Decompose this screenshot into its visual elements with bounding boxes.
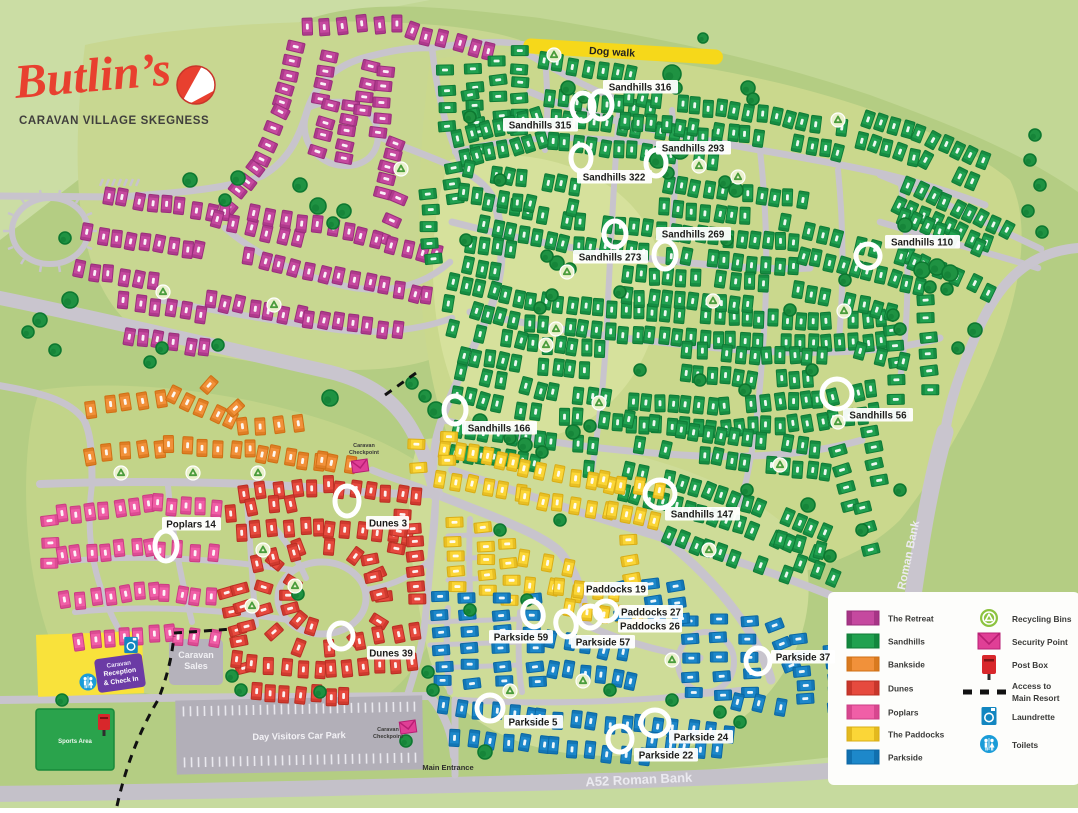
svg-text:Sales: Sales <box>184 661 208 671</box>
svg-text:The Paddocks: The Paddocks <box>888 730 945 740</box>
svg-text:Sandhills 147: Sandhills 147 <box>671 510 734 521</box>
svg-text:Main Entrance: Main Entrance <box>422 763 473 772</box>
svg-text:Sandhills 315: Sandhills 315 <box>509 121 572 132</box>
svg-text:Main Resort: Main Resort <box>1012 693 1060 703</box>
svg-text:Recycling Bins: Recycling Bins <box>1012 614 1072 624</box>
svg-text:Sandhills 322: Sandhills 322 <box>583 173 646 184</box>
svg-text:Dunes 3: Dunes 3 <box>369 519 408 530</box>
svg-text:Paddocks 26: Paddocks 26 <box>620 622 680 633</box>
svg-text:Parkside 22: Parkside 22 <box>639 751 694 762</box>
svg-text:Laundrette: Laundrette <box>1012 712 1055 722</box>
svg-text:CARAVAN VILLAGE SKEGNESS: CARAVAN VILLAGE SKEGNESS <box>19 115 209 127</box>
svg-text:Dunes: Dunes <box>888 684 914 694</box>
svg-text:Sandhills 293: Sandhills 293 <box>662 144 725 155</box>
svg-text:Paddocks 19: Paddocks 19 <box>586 585 646 596</box>
svg-text:Parkside 59: Parkside 59 <box>494 633 549 644</box>
svg-text:Day Visitors Car Park: Day Visitors Car Park <box>252 730 346 742</box>
svg-text:Parkside: Parkside <box>888 753 923 763</box>
svg-text:Parkside 57: Parkside 57 <box>576 638 631 649</box>
svg-text:Post Box: Post Box <box>1012 660 1048 670</box>
svg-text:Sandhills 269: Sandhills 269 <box>662 230 725 241</box>
svg-text:Parkside 24: Parkside 24 <box>674 733 729 744</box>
svg-text:Sandhills 56: Sandhills 56 <box>849 411 907 422</box>
svg-text:Sandhills 166: Sandhills 166 <box>468 424 531 435</box>
svg-text:Parkside 37: Parkside 37 <box>776 653 831 664</box>
svg-text:Poplars 14: Poplars 14 <box>166 520 216 531</box>
svg-text:Caravan: Caravan <box>178 650 214 660</box>
svg-text:Bankside: Bankside <box>888 660 925 670</box>
svg-text:Caravan: Caravan <box>353 443 375 449</box>
svg-text:Poplars: Poplars <box>888 708 919 718</box>
svg-text:Checkpoint: Checkpoint <box>349 450 379 456</box>
svg-text:The Retreat: The Retreat <box>888 614 934 624</box>
svg-text:Sandhills 110: Sandhills 110 <box>891 238 954 249</box>
svg-text:Sandhills: Sandhills <box>888 637 925 647</box>
svg-text:Checkpoint: Checkpoint <box>373 734 403 740</box>
svg-text:Sandhills 316: Sandhills 316 <box>609 83 672 94</box>
svg-text:Parkside 5: Parkside 5 <box>508 718 558 729</box>
svg-text:Access to: Access to <box>1012 681 1051 691</box>
svg-text:Paddocks 27: Paddocks 27 <box>621 608 681 619</box>
svg-text:Sports Area: Sports Area <box>58 739 92 745</box>
svg-text:Sandhills 273: Sandhills 273 <box>579 253 642 264</box>
svg-text:Caravan: Caravan <box>377 727 399 733</box>
svg-text:Dunes 39: Dunes 39 <box>369 649 413 660</box>
svg-text:Toilets: Toilets <box>1012 740 1039 750</box>
svg-text:Security Point: Security Point <box>1012 637 1068 647</box>
